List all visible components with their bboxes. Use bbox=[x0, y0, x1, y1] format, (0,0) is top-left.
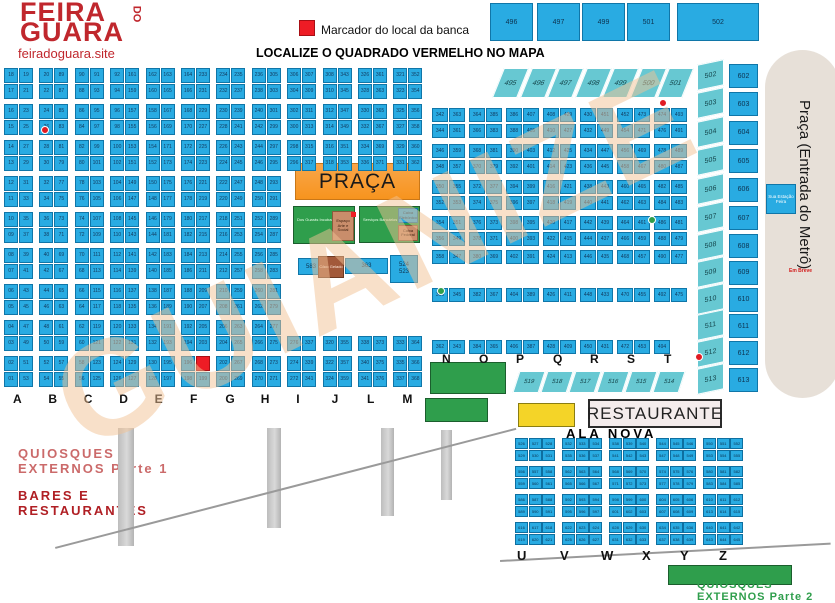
stall-cell[interactable]: 349 bbox=[449, 232, 465, 246]
stall-cell[interactable]: 68 bbox=[75, 264, 89, 279]
stall-cell[interactable]: 132 bbox=[146, 336, 160, 351]
stall-cell[interactable]: 375 bbox=[373, 356, 387, 371]
stall-cell[interactable]: 634 bbox=[656, 522, 669, 533]
stall-cell[interactable]: 93 bbox=[90, 84, 104, 99]
stall-cell[interactable]: 123 bbox=[90, 356, 104, 371]
stall-cell[interactable]: 392 bbox=[506, 160, 522, 174]
stall-cell[interactable]: 30 bbox=[39, 156, 53, 171]
stall-cell[interactable]: 452 bbox=[617, 108, 633, 122]
stall-cell[interactable]: 32 bbox=[39, 176, 53, 191]
stall-cell[interactable]: 478 bbox=[654, 144, 670, 158]
stall-cell[interactable]: 404 bbox=[506, 288, 522, 302]
stall-cell[interactable]: 305 bbox=[267, 68, 281, 83]
stall-cell[interactable]: 205 bbox=[196, 320, 210, 335]
stall-cell[interactable]: 184 bbox=[181, 248, 195, 263]
stall-cell[interactable]: 570 bbox=[636, 466, 649, 477]
stall-cell[interactable]: 365 bbox=[373, 104, 387, 119]
stall-cell[interactable]: 313 bbox=[302, 120, 316, 135]
stall-cell[interactable]: 120 bbox=[110, 320, 124, 335]
stall-cell[interactable]: 297 bbox=[267, 140, 281, 155]
stall-cell[interactable]: 329 bbox=[393, 140, 407, 155]
stall-cell[interactable]: 578 bbox=[670, 478, 683, 489]
stall-cell[interactable]: 362 bbox=[408, 156, 422, 171]
stall-cell[interactable]: 383 bbox=[486, 124, 502, 138]
stall-cell[interactable]: 29 bbox=[19, 156, 33, 171]
section-cell[interactable]: 506 bbox=[697, 173, 724, 205]
stall-cell[interactable]: 167 bbox=[161, 104, 175, 119]
stall-cell[interactable]: 347 bbox=[449, 250, 465, 264]
stall-cell[interactable]: 339 bbox=[302, 356, 316, 371]
stall-cell[interactable]: 361 bbox=[373, 68, 387, 83]
stall-cell[interactable]: 258 bbox=[252, 264, 266, 279]
stall-cell[interactable]: 612 bbox=[729, 341, 758, 365]
stall-cell[interactable]: 465 bbox=[634, 180, 650, 194]
stall-cell[interactable]: 457 bbox=[634, 250, 650, 264]
site-link[interactable]: feiradoguara.site bbox=[18, 46, 115, 61]
stall-cell[interactable]: 605 bbox=[670, 494, 683, 505]
stall-cell[interactable]: 09 bbox=[4, 228, 18, 243]
stall-cell[interactable]: 43 bbox=[19, 284, 33, 299]
stall-cell[interactable]: 402 bbox=[506, 250, 522, 264]
stall-cell[interactable]: 267 bbox=[231, 356, 245, 371]
stall-cell[interactable]: 441 bbox=[597, 196, 613, 210]
section-block[interactable]: 499 bbox=[582, 3, 625, 41]
stall-cell[interactable]: 558 bbox=[542, 466, 555, 477]
stall-cell[interactable]: 53 bbox=[19, 372, 33, 387]
stall-cell[interactable]: 98 bbox=[110, 120, 124, 135]
stall-cell[interactable]: 595 bbox=[562, 506, 575, 517]
stall-cell[interactable]: 347 bbox=[338, 104, 352, 119]
stall-cell[interactable]: 169 bbox=[161, 120, 175, 135]
stall-cell[interactable]: 97 bbox=[90, 120, 104, 135]
stall-cell[interactable]: 424 bbox=[543, 250, 559, 264]
stall-cell[interactable]: 10 bbox=[4, 212, 18, 227]
stall-cell[interactable]: 363 bbox=[449, 108, 465, 122]
stall-cell[interactable]: 61 bbox=[54, 320, 68, 335]
section-cell[interactable]: 502 bbox=[697, 59, 724, 91]
stall-cell[interactable]: 159 bbox=[125, 84, 139, 99]
stall-cell[interactable]: 527 bbox=[529, 438, 542, 449]
stall-cell[interactable]: 336 bbox=[358, 156, 372, 171]
stall-cell[interactable]: 590 bbox=[529, 506, 542, 517]
stall-cell[interactable]: 562 bbox=[562, 466, 575, 477]
stall-cell[interactable]: 216 bbox=[216, 228, 230, 243]
stall-cell[interactable]: 189 bbox=[161, 300, 175, 315]
stall-cell[interactable]: 37 bbox=[19, 228, 33, 243]
stall-cell[interactable]: 561 bbox=[542, 478, 555, 489]
stall-cell[interactable]: 304 bbox=[287, 84, 301, 99]
stall-cell[interactable]: 386 bbox=[506, 108, 522, 122]
stall-cell[interactable]: 439 bbox=[597, 216, 613, 230]
stall-cell[interactable]: 100 bbox=[110, 140, 124, 155]
coco-stand-block[interactable]: Côco Gelado bbox=[318, 256, 344, 278]
stall-cell[interactable]: 244 bbox=[252, 140, 266, 155]
stall-cell[interactable]: 279 bbox=[267, 300, 281, 315]
stall-cell[interactable]: 451 bbox=[597, 108, 613, 122]
stall-cell[interactable]: 377 bbox=[486, 180, 502, 194]
stall-cell[interactable]: 119 bbox=[90, 320, 104, 335]
stall-cell[interactable]: 355 bbox=[338, 336, 352, 351]
stall-cell[interactable]: 124 bbox=[110, 356, 124, 371]
stall-cell[interactable]: 641 bbox=[717, 522, 730, 533]
stall-cell[interactable]: 349 bbox=[338, 120, 352, 135]
stall-cell[interactable]: 620 bbox=[529, 534, 542, 545]
stall-cell[interactable]: 115 bbox=[90, 284, 104, 299]
stall-cell[interactable]: 174 bbox=[181, 156, 195, 171]
stall-cell[interactable]: 338 bbox=[358, 336, 372, 351]
stall-cell[interactable]: 172 bbox=[181, 140, 195, 155]
stall-cell[interactable]: 454 bbox=[617, 124, 633, 138]
stall-cell[interactable]: 624 bbox=[589, 522, 602, 533]
stall-cell[interactable]: 427 bbox=[560, 124, 576, 138]
stall-cell[interactable]: 364 bbox=[408, 336, 422, 351]
stall-cell[interactable]: 24 bbox=[39, 104, 53, 119]
stall-cell[interactable]: 353 bbox=[449, 196, 465, 210]
stall-cell[interactable]: 41 bbox=[19, 264, 33, 279]
stall-cell[interactable]: 12 bbox=[4, 176, 18, 191]
stall-cell[interactable]: 367 bbox=[373, 120, 387, 135]
stall-cell[interactable]: 141 bbox=[125, 248, 139, 263]
stall-cell[interactable]: 576 bbox=[683, 466, 696, 477]
stall-cell[interactable]: 622 bbox=[562, 522, 575, 533]
stall-cell[interactable]: 331 bbox=[393, 156, 407, 171]
stall-cell[interactable]: 135 bbox=[125, 300, 139, 315]
stall-cell[interactable]: 71 bbox=[54, 228, 68, 243]
stall-cell[interactable]: 623 bbox=[576, 522, 589, 533]
stall-cell[interactable]: 418 bbox=[543, 196, 559, 210]
stall-cell[interactable]: 134 bbox=[146, 320, 160, 335]
stall-cell[interactable]: 556 bbox=[515, 466, 528, 477]
stall-cell[interactable]: 492 bbox=[654, 288, 670, 302]
stall-cell[interactable]: 149 bbox=[125, 176, 139, 191]
stall-cell[interactable]: 637 bbox=[656, 534, 669, 545]
stall-cell[interactable]: 122 bbox=[110, 336, 124, 351]
stall-cell[interactable]: 530 bbox=[529, 450, 542, 461]
stall-cell[interactable]: 469 bbox=[634, 144, 650, 158]
stall-cell[interactable]: 275 bbox=[267, 336, 281, 351]
stall-cell[interactable]: 415 bbox=[560, 232, 576, 246]
stall-cell[interactable]: 429 bbox=[560, 108, 576, 122]
stall-cell[interactable]: 221 bbox=[196, 176, 210, 191]
stall-cell[interactable]: 266 bbox=[252, 336, 266, 351]
stall-cell[interactable]: 92 bbox=[110, 68, 124, 83]
stall-cell[interactable]: 301 bbox=[267, 104, 281, 119]
stall-cell[interactable]: 433 bbox=[597, 288, 613, 302]
stall-cell[interactable]: 249 bbox=[231, 192, 245, 207]
stall-cell[interactable]: 291 bbox=[267, 192, 281, 207]
stall-cell[interactable]: 376 bbox=[373, 372, 387, 387]
station-box[interactable]: Sua Estação Feira bbox=[766, 184, 796, 214]
stall-cell[interactable]: 405 bbox=[523, 124, 539, 138]
stall-cell[interactable]: 434 bbox=[580, 144, 596, 158]
stall-cell[interactable]: 237 bbox=[231, 84, 245, 99]
section-cell[interactable]: 504 bbox=[697, 116, 724, 148]
stall-cell[interactable]: 346 bbox=[432, 144, 448, 158]
stall-cell[interactable]: 351 bbox=[338, 140, 352, 155]
stall-cell[interactable]: 157 bbox=[125, 104, 139, 119]
stall-cell[interactable]: 66 bbox=[75, 284, 89, 299]
stall-cell[interactable]: 488 bbox=[654, 232, 670, 246]
stall-cell[interactable]: 289 bbox=[267, 212, 281, 227]
stall-cell[interactable]: 173 bbox=[161, 156, 175, 171]
stall-cell[interactable]: 396 bbox=[506, 196, 522, 210]
stall-cell[interactable]: 246 bbox=[252, 156, 266, 171]
stall-cell[interactable]: 381 bbox=[486, 144, 502, 158]
stall-cell[interactable]: 400 bbox=[506, 232, 522, 246]
section-block[interactable]: 502 bbox=[677, 3, 759, 41]
stall-cell[interactable]: 16 bbox=[4, 104, 18, 119]
stall-cell[interactable]: 202 bbox=[216, 356, 230, 371]
stall-cell[interactable]: 300 bbox=[287, 120, 301, 135]
section-cell[interactable]: 513 bbox=[697, 363, 724, 395]
stall-cell[interactable]: 594 bbox=[589, 494, 602, 505]
stall-cell[interactable]: 613 bbox=[729, 368, 758, 392]
stall-cell[interactable]: 113 bbox=[90, 264, 104, 279]
stall-cell[interactable]: 274 bbox=[287, 356, 301, 371]
stall-cell[interactable]: 435 bbox=[597, 250, 613, 264]
stall-cell[interactable]: 298 bbox=[287, 140, 301, 155]
stall-cell[interactable]: 225 bbox=[196, 140, 210, 155]
stall-cell[interactable]: 180 bbox=[181, 212, 195, 227]
stall-cell[interactable]: 111 bbox=[90, 248, 104, 263]
stall-cell[interactable]: 633 bbox=[636, 534, 649, 545]
stall-cell[interactable]: 206 bbox=[216, 320, 230, 335]
stall-cell[interactable]: 148 bbox=[146, 192, 160, 207]
stall-cell[interactable]: 56 bbox=[75, 372, 89, 387]
stall-cell[interactable]: 619 bbox=[515, 534, 528, 545]
section-block[interactable]: 496 bbox=[490, 3, 533, 41]
stall-cell[interactable]: 146 bbox=[146, 212, 160, 227]
stall-cell[interactable]: 101 bbox=[90, 156, 104, 171]
stall-cell[interactable]: 229 bbox=[196, 104, 210, 119]
stall-cell[interactable]: 226 bbox=[216, 140, 230, 155]
stall-cell[interactable]: 596 bbox=[576, 506, 589, 517]
stall-cell[interactable]: 555 bbox=[730, 450, 743, 461]
stall-cell[interactable]: 13 bbox=[4, 156, 18, 171]
stall-cell[interactable]: 112 bbox=[110, 248, 124, 263]
stall-cell[interactable]: 06 bbox=[4, 284, 18, 299]
stall-cell[interactable]: 269 bbox=[231, 372, 245, 387]
stall-cell[interactable]: 363 bbox=[345, 258, 388, 274]
stall-cell[interactable]: 616 bbox=[515, 522, 528, 533]
stall-cell[interactable]: 593 bbox=[576, 494, 589, 505]
stall-cell[interactable]: 358 bbox=[408, 120, 422, 135]
stall-cell[interactable]: 213 bbox=[196, 248, 210, 263]
stall-cell[interactable]: 295 bbox=[267, 156, 281, 171]
stall-cell[interactable]: 597 bbox=[589, 506, 602, 517]
stall-cell[interactable]: 348 bbox=[432, 160, 448, 174]
stall-cell[interactable]: 337 bbox=[302, 336, 316, 351]
stall-cell[interactable]: 198 bbox=[181, 372, 195, 387]
stall-cell[interactable]: 607 bbox=[729, 206, 758, 230]
stall-cell[interactable]: 560 bbox=[529, 478, 542, 489]
stall-cell[interactable]: 629 bbox=[623, 522, 636, 533]
stall-cell[interactable]: 371 bbox=[486, 232, 502, 246]
stall-cell[interactable]: 315 bbox=[302, 140, 316, 155]
stall-cell[interactable]: 617 bbox=[529, 522, 542, 533]
stall-cell[interactable]: 420 bbox=[543, 216, 559, 230]
stall-cell[interactable]: 311 bbox=[302, 104, 316, 119]
stall-cell[interactable]: 42 bbox=[39, 264, 53, 279]
stall-cell[interactable]: 227 bbox=[196, 120, 210, 135]
stall-cell[interactable]: 14 bbox=[4, 140, 18, 155]
stall-cell[interactable]: 379 bbox=[486, 160, 502, 174]
stall-cell[interactable]: 373 bbox=[373, 336, 387, 351]
stall-cell[interactable]: 156 bbox=[146, 120, 160, 135]
stall-cell[interactable]: 476 bbox=[654, 124, 670, 138]
stall-cell[interactable]: 627 bbox=[589, 534, 602, 545]
stall-cell[interactable]: 106 bbox=[110, 192, 124, 207]
stall-cell[interactable]: 203 bbox=[196, 336, 210, 351]
stall-cell[interactable]: 367 bbox=[486, 288, 502, 302]
stall-cell[interactable]: 252 bbox=[252, 212, 266, 227]
stall-cell[interactable]: 603 bbox=[729, 92, 758, 116]
stall-cell[interactable]: 245 bbox=[231, 156, 245, 171]
stall-cell[interactable]: 583 bbox=[703, 478, 716, 489]
stall-cell[interactable]: 445 bbox=[597, 160, 613, 174]
stall-cell[interactable]: 126 bbox=[110, 372, 124, 387]
stall-cell[interactable]: 411 bbox=[560, 288, 576, 302]
stall-cell[interactable]: 214 bbox=[216, 248, 230, 263]
stall-cell[interactable]: 373 bbox=[486, 216, 502, 230]
stall-cell[interactable]: 534 bbox=[589, 438, 602, 449]
stall-cell[interactable]: 483 bbox=[671, 196, 687, 210]
stall-cell[interactable]: 99 bbox=[90, 140, 104, 155]
stall-cell[interactable]: 628 bbox=[609, 522, 622, 533]
stall-cell[interactable]: 263 bbox=[231, 320, 245, 335]
stall-cell[interactable]: 397 bbox=[523, 196, 539, 210]
stall-cell[interactable]: 546 bbox=[683, 438, 696, 449]
stall-cell[interactable]: 413 bbox=[560, 250, 576, 264]
stall-cell[interactable]: 422 bbox=[543, 232, 559, 246]
stall-cell[interactable]: 195 bbox=[161, 356, 175, 371]
stall-cell[interactable]: 273 bbox=[267, 356, 281, 371]
stall-cell[interactable]: 142 bbox=[146, 248, 160, 263]
stall-cell[interactable]: 632 bbox=[623, 534, 636, 545]
stall-cell[interactable]: 196 bbox=[181, 356, 195, 371]
stall-cell[interactable]: 110 bbox=[110, 228, 124, 243]
stall-cell[interactable]: 193 bbox=[161, 336, 175, 351]
stall-cell[interactable]: 621 bbox=[542, 534, 555, 545]
stall-cell[interactable]: 81 bbox=[54, 140, 68, 155]
stall-cell[interactable]: 541 bbox=[609, 450, 622, 461]
stall-cell[interactable]: 391 bbox=[523, 250, 539, 264]
stall-cell[interactable]: 538 bbox=[609, 438, 622, 449]
stall-cell[interactable]: 345 bbox=[449, 288, 465, 302]
stall-cell[interactable]: 447 bbox=[597, 144, 613, 158]
stall-cell[interactable]: 482 bbox=[654, 180, 670, 194]
stall-cell[interactable]: 192 bbox=[181, 320, 195, 335]
stall-cell[interactable]: 74 bbox=[75, 212, 89, 227]
stall-cell[interactable]: 183 bbox=[161, 248, 175, 263]
stall-cell[interactable]: 591 bbox=[542, 506, 555, 517]
stall-cell[interactable]: 208 bbox=[216, 300, 230, 315]
stall-cell[interactable]: 587 bbox=[529, 494, 542, 505]
stall-cell[interactable]: 241 bbox=[231, 120, 245, 135]
stall-cell[interactable]: 566 bbox=[576, 478, 589, 489]
stall-cell[interactable]: 490 bbox=[654, 250, 670, 264]
stall-cell[interactable]: 470 bbox=[617, 288, 633, 302]
stall-cell[interactable]: 481 bbox=[671, 216, 687, 230]
stall-cell[interactable]: 401 bbox=[523, 160, 539, 174]
stall-cell[interactable]: 572 bbox=[623, 478, 636, 489]
marked-stall-red-square[interactable] bbox=[196, 356, 210, 371]
stall-cell[interactable]: 83 bbox=[54, 120, 68, 135]
stall-cell[interactable]: 376 bbox=[469, 216, 485, 230]
stall-cell[interactable]: 05 bbox=[4, 300, 18, 315]
stall-cell[interactable]: 308 bbox=[323, 68, 337, 83]
stall-cell[interactable]: 02 bbox=[4, 356, 18, 371]
stall-cell[interactable]: 102 bbox=[110, 156, 124, 171]
stall-cell[interactable]: 179 bbox=[161, 212, 175, 227]
stall-cell[interactable]: 580 bbox=[703, 466, 716, 477]
stall-cell[interactable]: 137 bbox=[125, 284, 139, 299]
stall-cell[interactable]: 419 bbox=[560, 196, 576, 210]
stall-cell[interactable]: 259 bbox=[231, 284, 245, 299]
stall-cell[interactable]: 215 bbox=[196, 228, 210, 243]
stall-cell[interactable]: 161 bbox=[125, 68, 139, 83]
stall-cell[interactable]: 197 bbox=[161, 372, 175, 387]
stall-cell[interactable]: 417 bbox=[560, 216, 576, 230]
stall-cell[interactable]: 187 bbox=[161, 284, 175, 299]
stall-cell[interactable]: 108 bbox=[110, 212, 124, 227]
stall-cell[interactable]: 479 bbox=[671, 232, 687, 246]
stall-cell[interactable]: 60 bbox=[75, 336, 89, 351]
stall-cell[interactable]: 264 bbox=[252, 320, 266, 335]
stall-cell[interactable]: 557 bbox=[529, 466, 542, 477]
stall-cell[interactable]: 303 bbox=[267, 84, 281, 99]
stall-cell[interactable]: 281 bbox=[267, 284, 281, 299]
stall-cell[interactable]: 08 bbox=[4, 248, 18, 263]
stall-cell[interactable]: 75 bbox=[54, 192, 68, 207]
stall-cell[interactable]: 38 bbox=[39, 228, 53, 243]
stall-cell[interactable]: 127 bbox=[125, 372, 139, 387]
stall-cell[interactable]: 393 bbox=[523, 232, 539, 246]
stall-cell[interactable]: 136 bbox=[146, 300, 160, 315]
stall-cell[interactable]: 272 bbox=[287, 372, 301, 387]
stall-cell[interactable]: 59 bbox=[54, 336, 68, 351]
stall-cell[interactable]: 20 bbox=[39, 68, 53, 83]
stall-cell[interactable]: 357 bbox=[338, 356, 352, 371]
stall-cell[interactable]: 163 bbox=[161, 68, 175, 83]
stall-cell[interactable]: 371 bbox=[373, 156, 387, 171]
stall-cell[interactable]: 50 bbox=[39, 336, 53, 351]
stall-cell[interactable]: 35 bbox=[19, 212, 33, 227]
stall-cell[interactable]: 412 bbox=[543, 144, 559, 158]
stall-cell[interactable]: 455 bbox=[634, 288, 650, 302]
stall-cell[interactable]: 80 bbox=[75, 156, 89, 171]
stall-cell[interactable]: 250 bbox=[252, 192, 266, 207]
stall-cell[interactable]: 76 bbox=[75, 192, 89, 207]
stall-cell[interactable]: 70 bbox=[75, 248, 89, 263]
stall-cell[interactable]: 353 bbox=[338, 156, 352, 171]
stall-cell[interactable]: 588 bbox=[542, 494, 555, 505]
stall-cell[interactable]: 360 bbox=[408, 140, 422, 155]
stall-cell[interactable]: 390 bbox=[506, 144, 522, 158]
stall-cell[interactable]: 491 bbox=[671, 124, 687, 138]
stall-cell[interactable]: 171 bbox=[161, 140, 175, 155]
stall-cell[interactable]: 19 bbox=[19, 68, 33, 83]
section-cell[interactable]: 503 bbox=[697, 88, 724, 120]
stall-cell[interactable]: 456 bbox=[617, 144, 633, 158]
stall-cell[interactable]: 550 bbox=[703, 438, 716, 449]
stall-cell[interactable]: 242 bbox=[252, 120, 266, 135]
stall-cell[interactable]: 480 bbox=[654, 160, 670, 174]
stall-cell[interactable]: 07 bbox=[4, 264, 18, 279]
stall-cell[interactable]: 350 bbox=[432, 180, 448, 194]
stall-cell[interactable]: 543 bbox=[636, 450, 649, 461]
stall-cell[interactable]: 358 bbox=[432, 250, 448, 264]
